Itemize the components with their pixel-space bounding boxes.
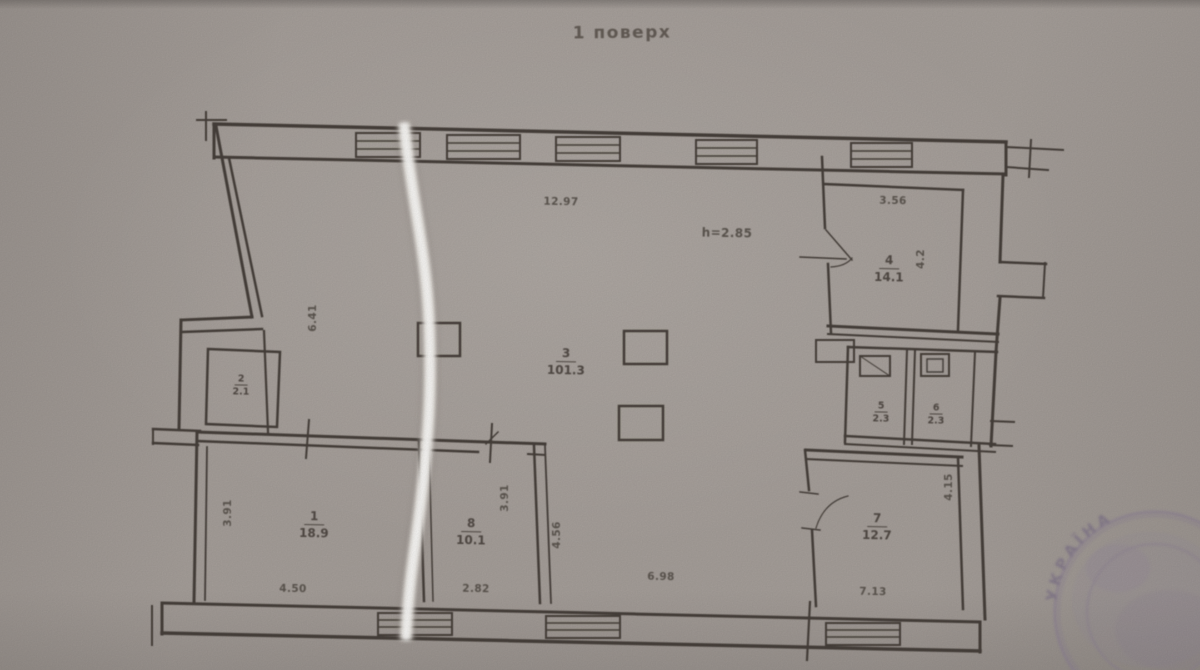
room-area: 101.3	[547, 361, 585, 377]
room-number: 2	[235, 374, 248, 385]
room-number: 8	[461, 517, 482, 532]
dim-room8-width: 2.82	[462, 583, 490, 596]
room-number: 3	[556, 347, 577, 362]
room-area: 12.7	[862, 527, 892, 543]
room-area: 2.3	[872, 412, 889, 424]
room-area: 2.3	[927, 414, 944, 426]
page-title: 1 поверх	[573, 23, 672, 44]
room-6-label: 6 2.3	[927, 403, 944, 426]
scan-grain	[0, 0, 1200, 670]
dim-room7-depth: 4.15	[943, 473, 955, 501]
dim-room4-depth: 4.2	[915, 249, 927, 269]
room-number: 6	[930, 403, 943, 414]
room-number: 1	[304, 510, 325, 525]
dim-room4-width: 3.56	[879, 195, 907, 208]
room-number: 4	[879, 254, 900, 269]
dim-left-upper: 6.41	[307, 304, 319, 332]
room-number: 5	[875, 401, 888, 412]
room-2-label: 2 2.1	[232, 374, 249, 397]
dim-room1-width: 4.50	[279, 583, 307, 596]
room-3-label: 3 101.3	[547, 347, 586, 377]
room-8-label: 8 10.1	[456, 517, 486, 547]
room-area: 2.1	[232, 385, 249, 397]
dim-bottom-center: 6.98	[647, 571, 675, 584]
room-5-label: 5 2.3	[872, 401, 889, 424]
room-area: 14.1	[874, 269, 904, 285]
floor-plan-drawing: УКРАЇНА	[0, 0, 1200, 670]
room-1-label: 1 18.9	[299, 510, 329, 540]
ceiling-height-note: h=2.85	[702, 226, 753, 241]
room-7-label: 7 12.7	[862, 512, 892, 542]
dim-room7-width: 7.13	[859, 586, 887, 599]
dim-room1-depth: 3.91	[222, 499, 234, 527]
dim-hall-width: 12.97	[543, 196, 578, 209]
dim-room8-depth: 3.91	[499, 484, 511, 512]
room-4-label: 4 14.1	[874, 254, 904, 284]
dim-corridor-depth: 4.56	[551, 521, 563, 549]
room-number: 7	[867, 512, 888, 527]
scanned-floor-plan: УКРАЇНА 1 поверх 12.97 h=2.85 3.56 4.2 6…	[0, 0, 1200, 670]
room-area: 18.9	[299, 525, 329, 541]
room-area: 10.1	[456, 532, 486, 548]
